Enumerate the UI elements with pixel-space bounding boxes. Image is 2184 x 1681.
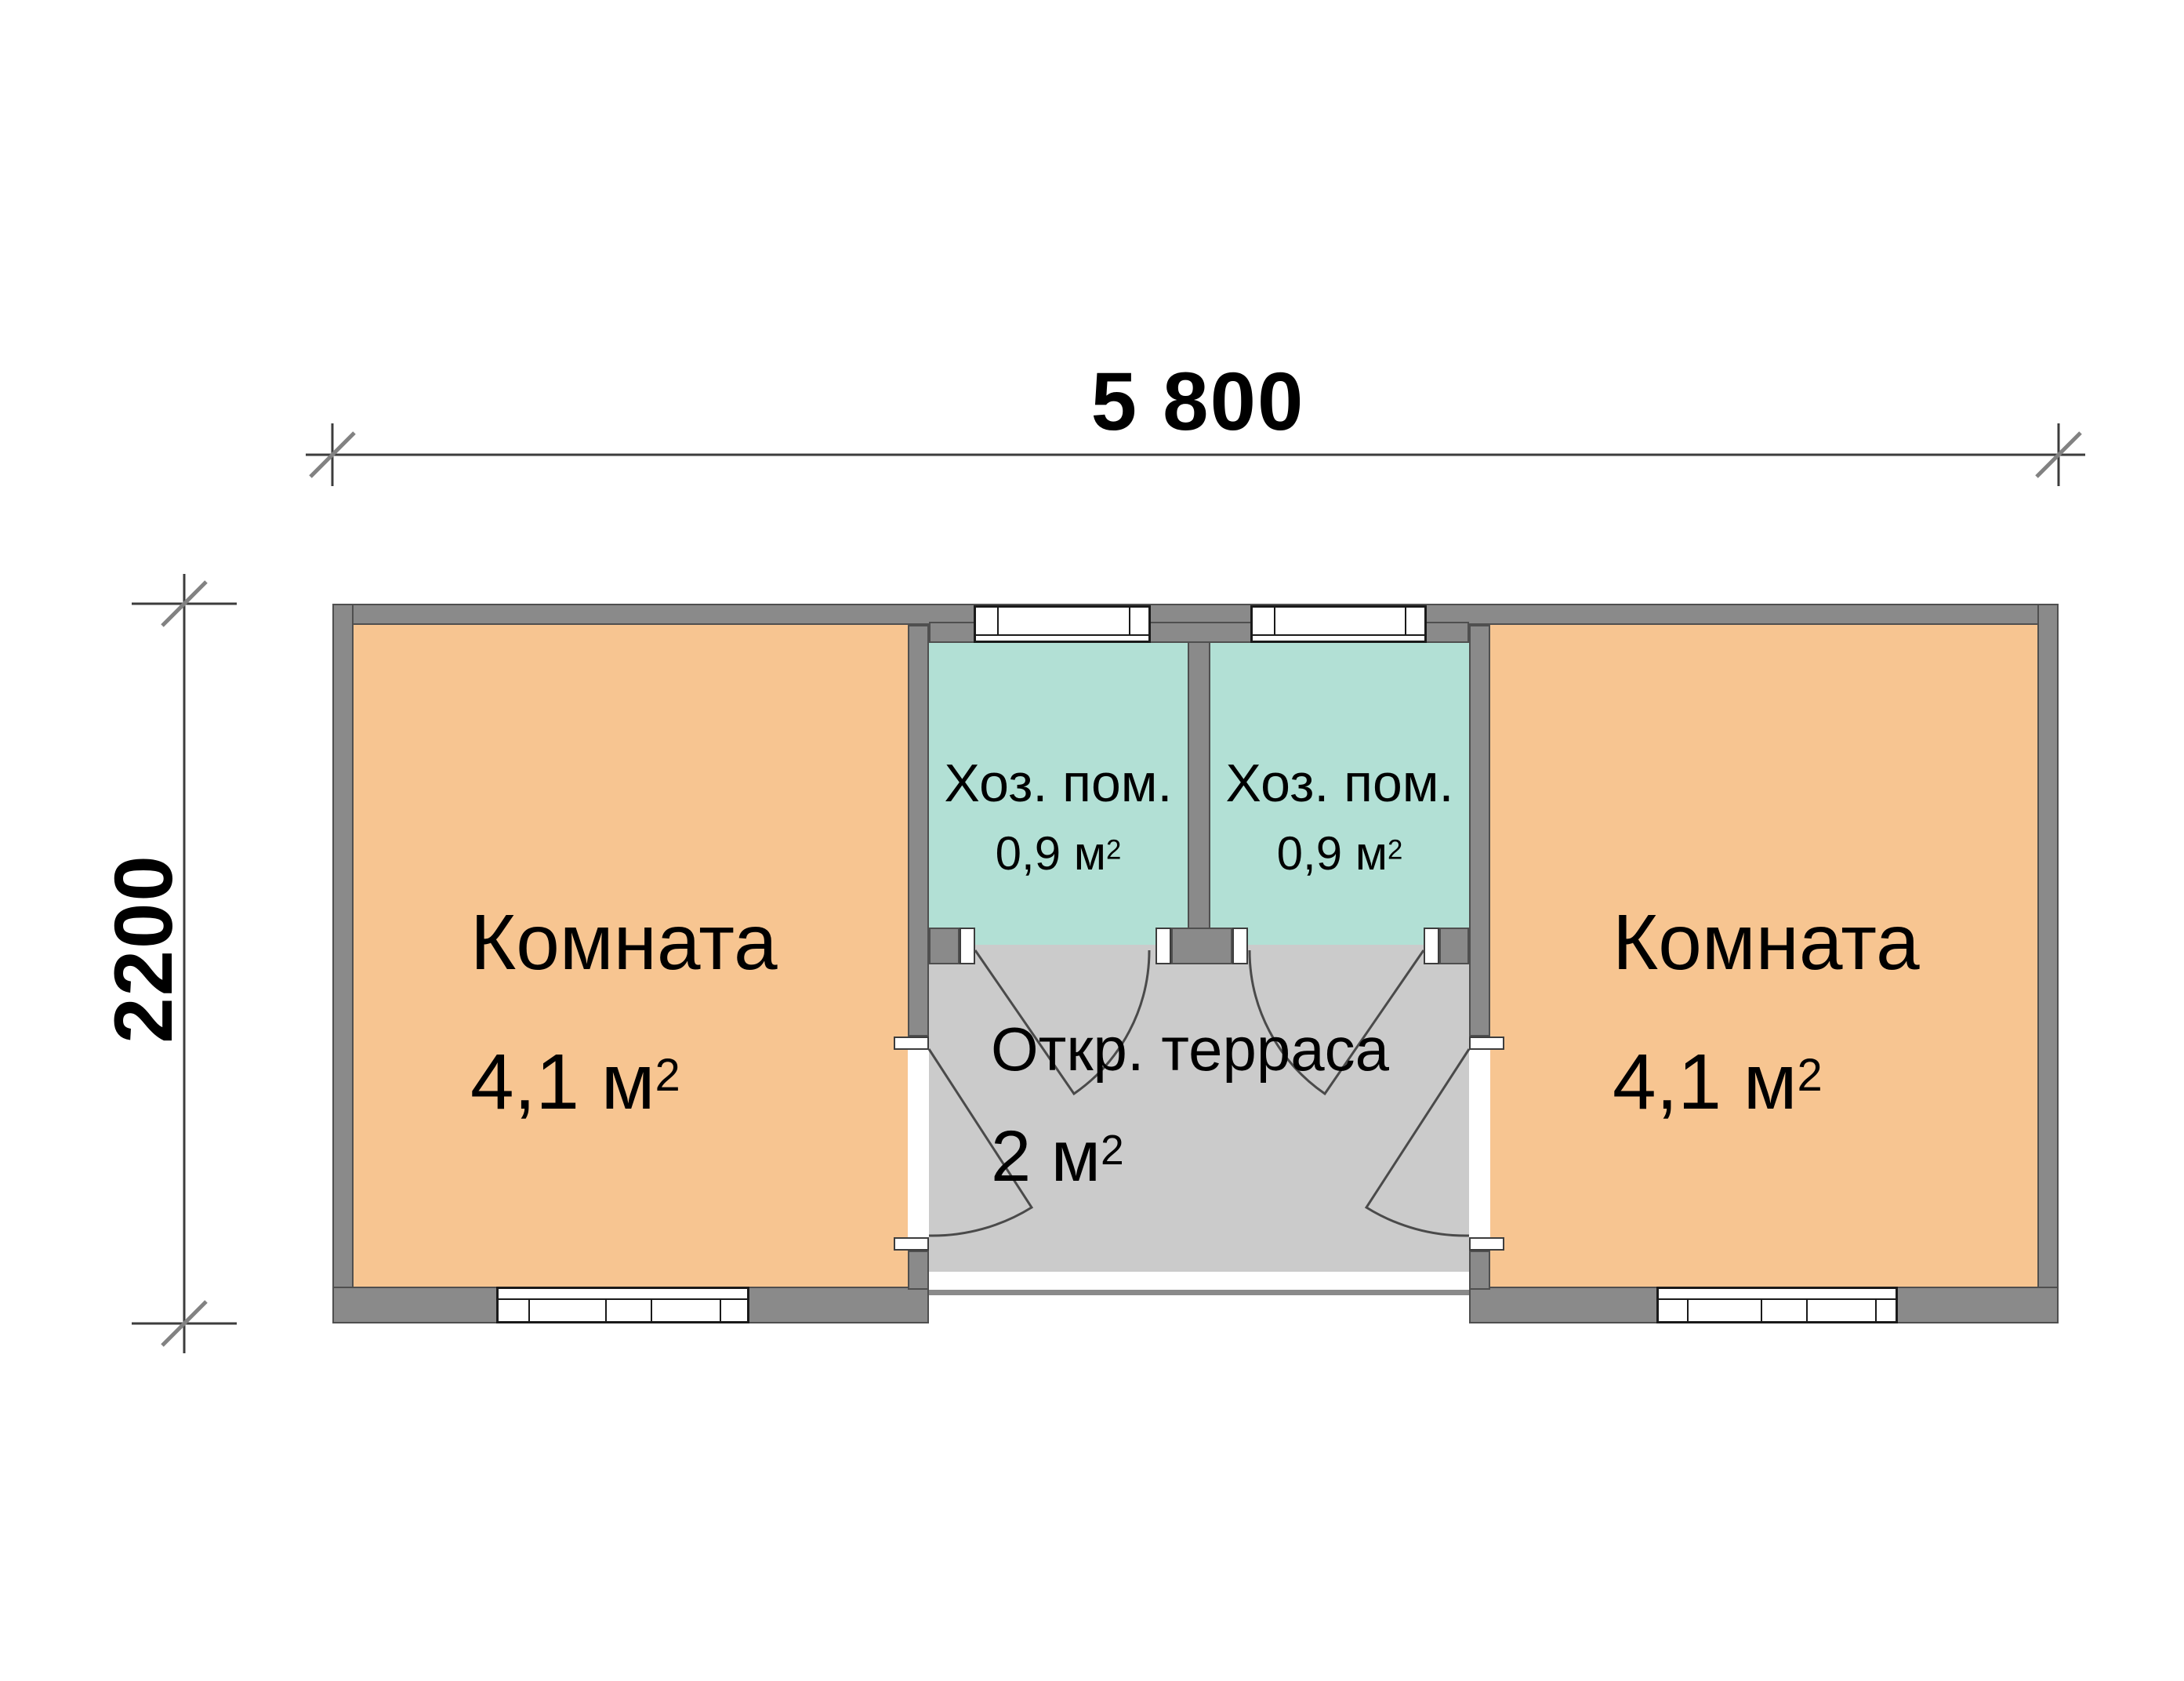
window-utility-right bbox=[1250, 605, 1427, 643]
terrace-floor bbox=[929, 945, 1469, 1272]
wall-partition-right-upper bbox=[1469, 625, 1490, 1037]
wall-exterior-right bbox=[2037, 604, 2059, 1323]
jamb-room-right-door-upper bbox=[1469, 1037, 1504, 1050]
utility-right-area: 0,9 м2 bbox=[1210, 830, 1469, 878]
wall-stub-utility-middle bbox=[1171, 928, 1232, 964]
room-right-name: Комната bbox=[1613, 902, 1920, 983]
floor-plan: 5 800 2200 Комната 4,1 м2 Комната 4,1 м2… bbox=[0, 0, 2184, 1681]
wall-stub-utility-left-end bbox=[929, 928, 960, 964]
dimension-width-label: 5 800 bbox=[963, 359, 1433, 445]
jamb-utility-right-door-left bbox=[1232, 928, 1248, 964]
window-room-right bbox=[1656, 1287, 1898, 1323]
utility-left-name: Хоз. пом. bbox=[929, 756, 1188, 811]
room-left-area: 4,1 м2 bbox=[470, 1041, 680, 1123]
jamb-utility-right-door-right bbox=[1424, 928, 1439, 964]
wall-partition-left-upper bbox=[908, 625, 929, 1037]
jamb-utility-left-door-left bbox=[960, 928, 975, 964]
window-utility-left bbox=[974, 605, 1151, 643]
jamb-room-left-door-lower bbox=[894, 1237, 929, 1251]
utility-right-name: Хоз. пом. bbox=[1210, 756, 1469, 811]
terrace-area: 2 м2 bbox=[991, 1120, 1124, 1195]
utility-left-area: 0,9 м2 bbox=[929, 830, 1188, 878]
dimension-height-label: 2200 bbox=[101, 831, 187, 1066]
room-right-area: 4,1 м2 bbox=[1613, 1041, 1823, 1123]
wall-exterior-left bbox=[332, 604, 354, 1323]
jamb-room-left-door-upper bbox=[894, 1037, 929, 1050]
room-left-name: Комната bbox=[470, 902, 778, 983]
wall-partition-middle bbox=[1188, 641, 1210, 929]
wall-partition-left-lower bbox=[908, 1251, 929, 1290]
jamb-room-right-door-lower bbox=[1469, 1237, 1504, 1251]
wall-stub-utility-right-end bbox=[1439, 928, 1469, 964]
wall-partition-right-lower bbox=[1469, 1251, 1490, 1290]
terrace-front-edge bbox=[929, 1290, 1469, 1295]
window-room-left bbox=[496, 1287, 749, 1323]
jamb-utility-left-door-right bbox=[1155, 928, 1171, 964]
terrace-name: Откр. терраса bbox=[991, 1018, 1389, 1081]
